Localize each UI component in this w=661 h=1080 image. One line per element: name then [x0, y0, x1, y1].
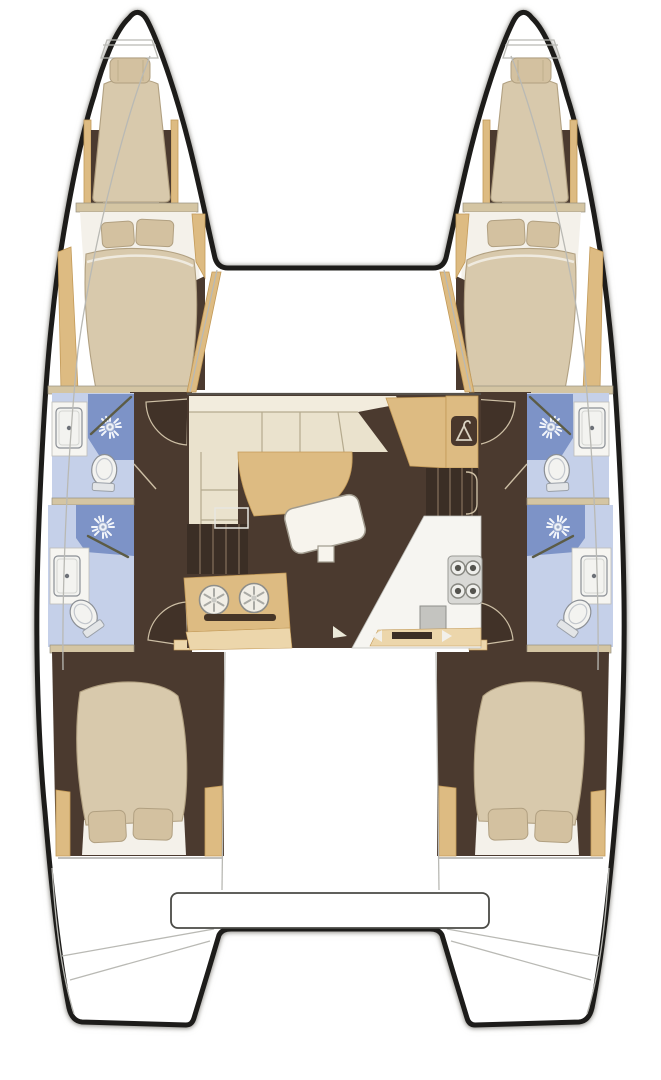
burner-icon: [466, 584, 480, 598]
drain-sink-icon: [200, 586, 229, 615]
burner-icon: [451, 561, 465, 575]
galley-sink: [420, 606, 446, 630]
table-pedestal: [318, 546, 334, 562]
salon: [184, 393, 482, 650]
floor-plan-canvas: [0, 0, 661, 1080]
catamaran-floor-plan: [0, 0, 661, 1080]
burner-icon: [451, 584, 465, 598]
galley-sink-unit: [184, 573, 292, 650]
burner-icon: [466, 561, 480, 575]
drain-sink-icon: [240, 584, 269, 613]
aft-cockpit-bench: [171, 893, 489, 928]
wardrobe-locker: [451, 416, 477, 446]
starboard-companionway-steps: [426, 468, 478, 516]
